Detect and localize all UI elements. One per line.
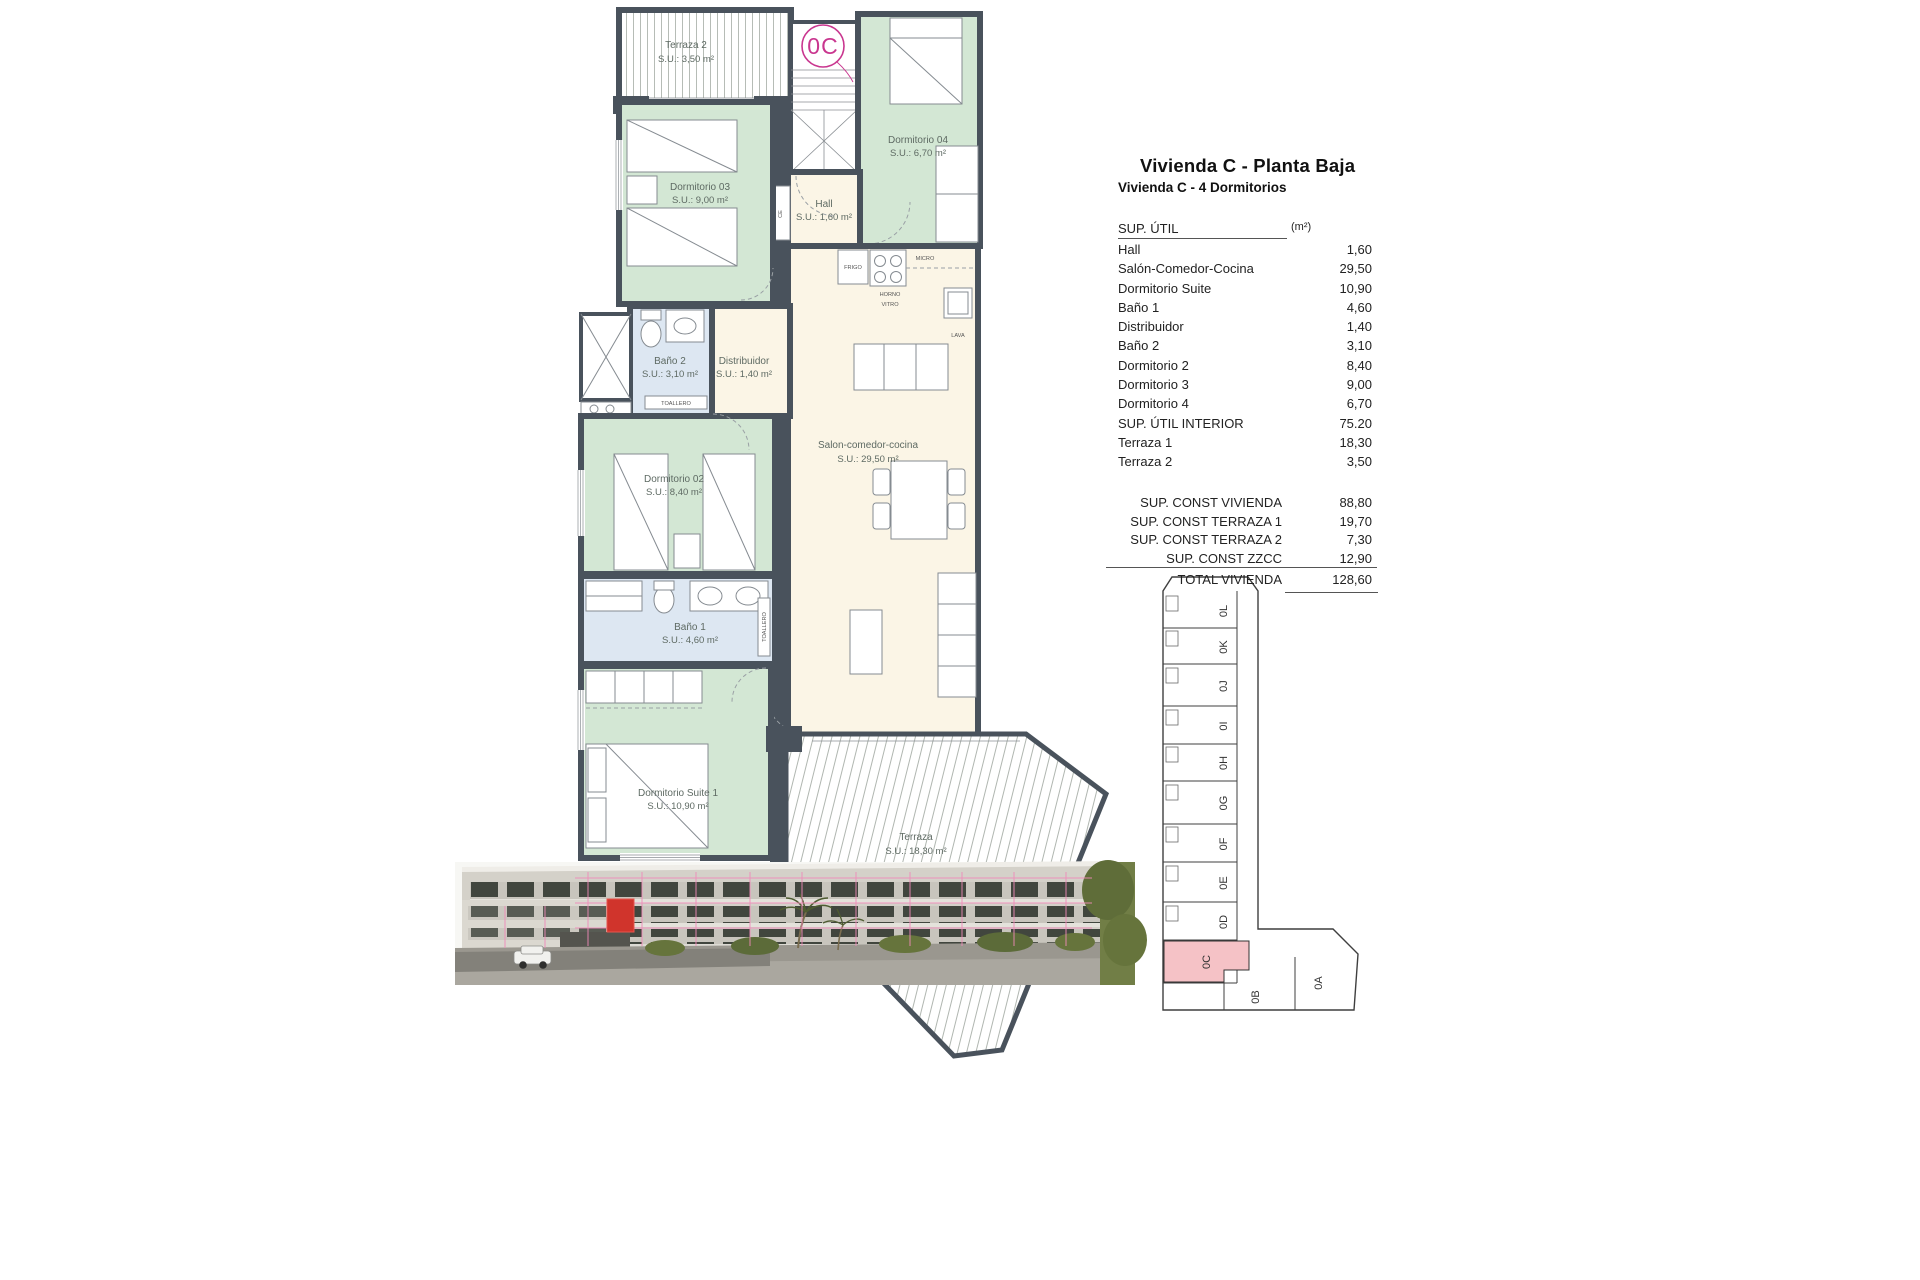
wall-segment [766,726,802,752]
room-area-label: S.U.: 9,00 m² [672,195,728,206]
table-row: Distribuidor1,40 [1118,317,1372,336]
summary-row: SUP. CONST TERRAZA 119,70 [1118,513,1372,532]
page-title: Vivienda C - Planta Baja [1140,155,1355,177]
towel-rail-label: TOALLERO [661,401,691,407]
double-sink [690,581,768,611]
dining-table [891,461,947,539]
summary-row: SUP. CONST ZZCC12,90 [1118,550,1372,569]
room-label: Baño 2 [654,356,686,367]
key-plan-unit-label: 0G [1218,796,1230,811]
room-area-label: S.U.: 29,50 m² [837,454,898,465]
key-plan-notches [1166,596,1178,921]
room-area-label: S.U.: 3,50 m² [658,54,714,65]
table-row: Dormitorio 39,00 [1118,375,1372,394]
nightstand [627,176,657,204]
building-photo [455,860,1147,985]
key-plan-unit-label: 0E [1218,876,1230,889]
page-subtitle: Vivienda C - 4 Dormitorios [1118,180,1287,195]
key-plan-unit-label: 0D [1218,915,1230,929]
toilet [641,321,661,347]
area-table-summary: SUP. CONST VIVIENDA88,80 SUP. CONST TERR… [1118,494,1372,568]
room-label: Dormitorio Suite 1 [638,788,718,799]
table-row: Dormitorio 46,70 [1118,394,1372,413]
room-area-label: S.U.: 8,40 m² [646,487,702,498]
key-plan-unit-label: 0B [1250,990,1262,1003]
room-label: Dormitorio 02 [644,474,704,485]
highlighted-unit-marker [607,899,634,932]
sink [666,310,704,342]
closet-label: CE [778,210,784,218]
key-plan-unit-label: 0K [1218,640,1230,654]
coffee-table [850,610,882,674]
table-row: Baño 23,10 [1118,336,1372,355]
room-area-label: S.U.: 1,60 m² [796,212,852,223]
total-row-wrap: TOTAL VIVIENDA128,60 [1118,571,1372,590]
key-plan-unit-label: 0H [1218,756,1230,770]
room-label: Salon-comedor-cocina [818,440,918,451]
plan-sheet: 0C Dormitorio 04 S.U.: 6,70 m² CE Hall S… [0,0,1920,1280]
room-label: Hall [815,199,832,210]
room-area-label: S.U.: 3,10 m² [642,369,698,380]
key-plan-unit-label: 0J [1218,680,1230,692]
total-row: TOTAL VIVIENDA128,60 [1118,571,1372,590]
total-underline [1285,592,1378,593]
kitchen-island [854,344,948,390]
summary-row: SUP. CONST TERRAZA 27,30 [1118,531,1372,550]
table-header-unit: (m²) [1291,221,1311,233]
total-separator-line [1106,567,1377,568]
room-area-label: S.U.: 1,40 m² [716,369,772,380]
toilet [654,587,674,613]
room-label: Terraza 2 [665,40,707,51]
room-label: Distribuidor [719,356,770,367]
table-row: Terraza 23,50 [1118,452,1372,471]
table-row: Terraza 118,30 [1118,433,1372,452]
chair [873,469,890,495]
table-row: Salón-Comedor-Cocina29,50 [1118,259,1372,278]
key-plan-unit-label: 0A [1313,976,1325,990]
drawing-canvas: 0C Dormitorio 04 S.U.: 6,70 m² CE Hall S… [0,0,1920,1280]
unit-badge-label: 0C [807,33,838,59]
table-header: SUP. ÚTIL(m²) [1118,221,1372,239]
area-table-rows: Hall1,60 Salón-Comedor-Cocina29,50 Dormi… [1118,240,1372,472]
chair [873,503,890,529]
chair [948,503,965,529]
room-area-label: S.U.: 4,60 m² [662,635,718,646]
towel-rail-label: TOALLERO [762,611,768,641]
summary-row: SUP. CONST VIVIENDA88,80 [1118,494,1372,513]
room-label: Dormitorio 04 [888,135,948,146]
table-row: Dormitorio 28,40 [1118,356,1372,375]
key-plan-unit-label: 0L [1218,605,1230,617]
room-label: Baño 1 [674,622,706,633]
nightstand [674,534,700,568]
key-plan-unit-label: 0I [1218,721,1230,730]
table-row: Dormitorio Suite10,90 [1118,279,1372,298]
oven-label-1: HORNO [880,292,901,298]
table-row: SUP. ÚTIL INTERIOR75.20 [1118,414,1372,433]
table-header-label: SUP. ÚTIL [1118,221,1287,239]
table-row: Hall1,60 [1118,240,1372,259]
key-plan-unit-label: 0C [1201,955,1213,969]
key-plan: 0L 0K 0J 0I 0H 0G 0F 0E 0D 0C 0B 0A [1163,577,1358,1010]
microwave-label: MICRO [916,256,935,262]
oven-label-2: VITRO [881,302,899,308]
key-plan-unit-label: 0F [1218,837,1230,850]
room-area-label: S.U.: 10,90 m² [647,801,708,812]
washer-label: LAVA [951,333,965,339]
room-label: Terraza [899,832,933,843]
room-label: Dormitorio 03 [670,182,730,193]
table-row: Baño 14,60 [1118,298,1372,317]
room-area-label: S.U.: 18,30 m² [885,846,946,857]
chair [948,469,965,495]
fridge-label: FRIGO [844,265,862,271]
room-area-label: S.U.: 6,70 m² [890,148,946,159]
